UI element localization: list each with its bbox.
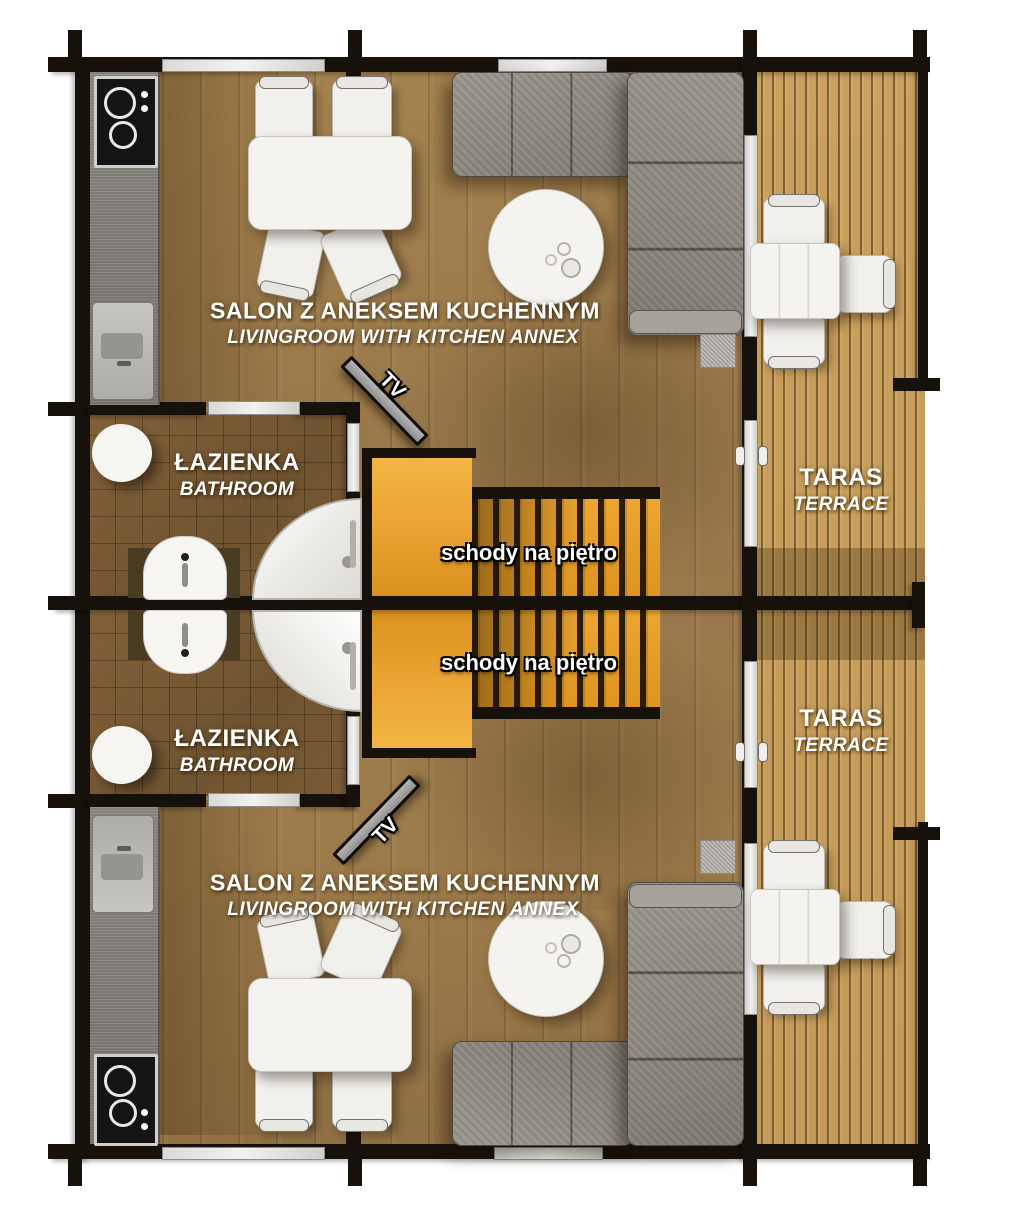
carafe-icon	[561, 258, 581, 278]
window-bottom-1	[162, 1147, 325, 1160]
door-handle-top-outer	[758, 446, 768, 466]
terrace-table-top-unit	[750, 243, 840, 319]
stairs-label-top: schody na piętro	[441, 540, 617, 566]
dining-chair	[255, 1066, 313, 1128]
log-tick-bottom-3	[743, 1144, 757, 1186]
room-label-terrace-top-pl: TARAS	[799, 464, 882, 492]
terrace-chair	[763, 844, 825, 894]
door-handle-bottom-outer	[758, 742, 768, 762]
room-label-terrace-bottom-pl: TARAS	[799, 705, 882, 733]
stairs-rail-bottom-unit	[472, 707, 660, 719]
dining-chair	[332, 1066, 392, 1128]
doormat-top-unit	[700, 334, 736, 368]
stairs-label-bottom: schody na piętro	[441, 650, 617, 676]
log-tick-top-3	[743, 30, 757, 72]
toilet-top-unit	[92, 424, 152, 482]
burner-icon	[109, 121, 137, 149]
log-tick-right-cross-top	[893, 378, 940, 391]
log-tick-left-bottom-corner	[48, 1144, 78, 1159]
faucet-icon	[117, 846, 131, 851]
room-label-salon-bottom-pl: SALON Z ANEKSEM KUCHENNYM	[210, 870, 600, 897]
door-handle-top-inner	[735, 446, 745, 466]
wall-terrace-right-lower	[918, 822, 928, 1159]
faucet-icon	[182, 563, 188, 587]
log-tick-left-center	[48, 596, 78, 610]
coffee-table-top-unit	[488, 189, 604, 305]
carafe-icon	[561, 934, 581, 954]
stairs-frame-bottom-unit-bottom	[362, 748, 476, 758]
shower-bar	[350, 520, 356, 568]
sofa-bottom-unit-armrest	[629, 884, 742, 908]
sofa-bottom-unit-seat-row	[452, 1041, 634, 1146]
dining-table-bottom-unit	[248, 978, 412, 1072]
stairs-frame-bottom-unit-left	[362, 610, 372, 758]
room-label-salon-top-pl: SALON Z ANEKSEM KUCHENNYM	[210, 298, 600, 325]
room-label-bathroom-bottom-pl: ŁAZIENKA	[174, 725, 299, 753]
wall-bathroom-bottom-a	[88, 794, 206, 807]
terrace-table-bottom-unit	[750, 889, 840, 965]
log-tick-top-2	[348, 30, 362, 72]
door-terrace-bottom-unit[interactable]	[744, 661, 758, 788]
toilet-bottom-unit	[92, 726, 152, 784]
room-label-salon-bottom-en: LIVINGROOM WITH KITCHEN ANNEX	[227, 899, 579, 921]
dining-chair	[255, 80, 313, 142]
kitchen-sink-bottom-unit	[92, 815, 154, 913]
cooktop-bottom-unit	[94, 1054, 158, 1146]
cooktop-knob	[141, 1123, 148, 1130]
terrace-chair	[836, 255, 892, 313]
door-bathroom-bottom[interactable]	[208, 793, 300, 807]
cup-icon	[545, 942, 557, 954]
door-bathroom-top[interactable]	[208, 401, 300, 415]
log-tick-bottom-4	[913, 1144, 927, 1186]
log-tick-left-top-corner	[48, 57, 78, 72]
wall-terrace-right-upper	[918, 57, 928, 387]
kitchen-sink-top-unit	[92, 302, 154, 400]
window-bottom-2	[494, 1147, 603, 1160]
sink-basin	[101, 854, 143, 880]
cup-icon	[557, 242, 571, 256]
room-label-salon-top-en: LIVINGROOM WITH KITCHEN ANNEX	[227, 327, 579, 349]
door-handle-bottom-inner	[735, 742, 745, 762]
doormat-bottom-unit	[700, 840, 736, 874]
cooktop-top-unit	[94, 76, 158, 168]
door-terrace-top-unit[interactable]	[744, 420, 758, 547]
door-bathroom-bottom-side[interactable]	[347, 716, 360, 785]
room-label-bathroom-top-pl: ŁAZIENKA	[174, 449, 299, 477]
terrace-chair	[763, 315, 825, 365]
wall-unit-divider-endcap	[912, 582, 925, 628]
cooktop-knob	[141, 1109, 148, 1116]
door-bathroom-top-side[interactable]	[347, 423, 360, 492]
sink-basin	[101, 333, 143, 359]
stairs-frame-top-unit-top	[362, 448, 476, 458]
log-tick-left-bath-bottom	[48, 794, 78, 808]
window-top-1	[162, 59, 325, 72]
burner-icon	[104, 87, 136, 119]
cup-icon	[557, 954, 571, 968]
sofa-top-unit-corner-column	[627, 72, 744, 336]
log-tick-bottom-2	[348, 1144, 362, 1186]
stairs-rail-top-unit	[472, 487, 660, 499]
faucet-knob	[181, 649, 189, 657]
cup-icon	[545, 254, 557, 266]
faucet-knob	[181, 553, 189, 561]
faucet-icon	[117, 361, 131, 366]
cooktop-knob	[141, 91, 148, 98]
stairs-frame-top-unit-left	[362, 448, 372, 596]
terrace-chair	[763, 961, 825, 1011]
floor-plan: TV TV SALON Z ANEKSEM KUCHENNYM LIVINGRO…	[0, 0, 1009, 1218]
sofa-top-unit-armrest	[629, 310, 742, 334]
room-label-terrace-top-en: TERRACE	[793, 494, 888, 516]
burner-icon	[109, 1099, 137, 1127]
dining-table-top-unit	[248, 136, 412, 230]
log-tick-top-4	[913, 30, 927, 72]
stairs-landing-bottom-unit	[372, 610, 472, 748]
terrace-chair	[763, 198, 825, 248]
log-tick-left-bath-top	[48, 402, 78, 416]
window-top-2	[498, 59, 607, 72]
room-label-terrace-bottom-en: TERRACE	[793, 735, 888, 757]
sofa-bottom-unit-corner-column	[627, 882, 744, 1146]
dining-chair	[332, 80, 392, 142]
burner-icon	[104, 1065, 136, 1097]
room-label-bathroom-top-en: BATHROOM	[180, 479, 294, 501]
shower-bar	[350, 642, 356, 690]
terrace-chair	[836, 901, 892, 959]
stairs-landing-top-unit	[372, 458, 472, 596]
room-label-bathroom-bottom-en: BATHROOM	[180, 755, 294, 777]
cooktop-knob	[141, 105, 148, 112]
faucet-icon	[182, 623, 188, 647]
sofa-top-unit-seat-row	[452, 72, 634, 177]
washbasin-top-unit	[143, 536, 227, 600]
log-tick-right-cross-bottom	[893, 827, 940, 840]
